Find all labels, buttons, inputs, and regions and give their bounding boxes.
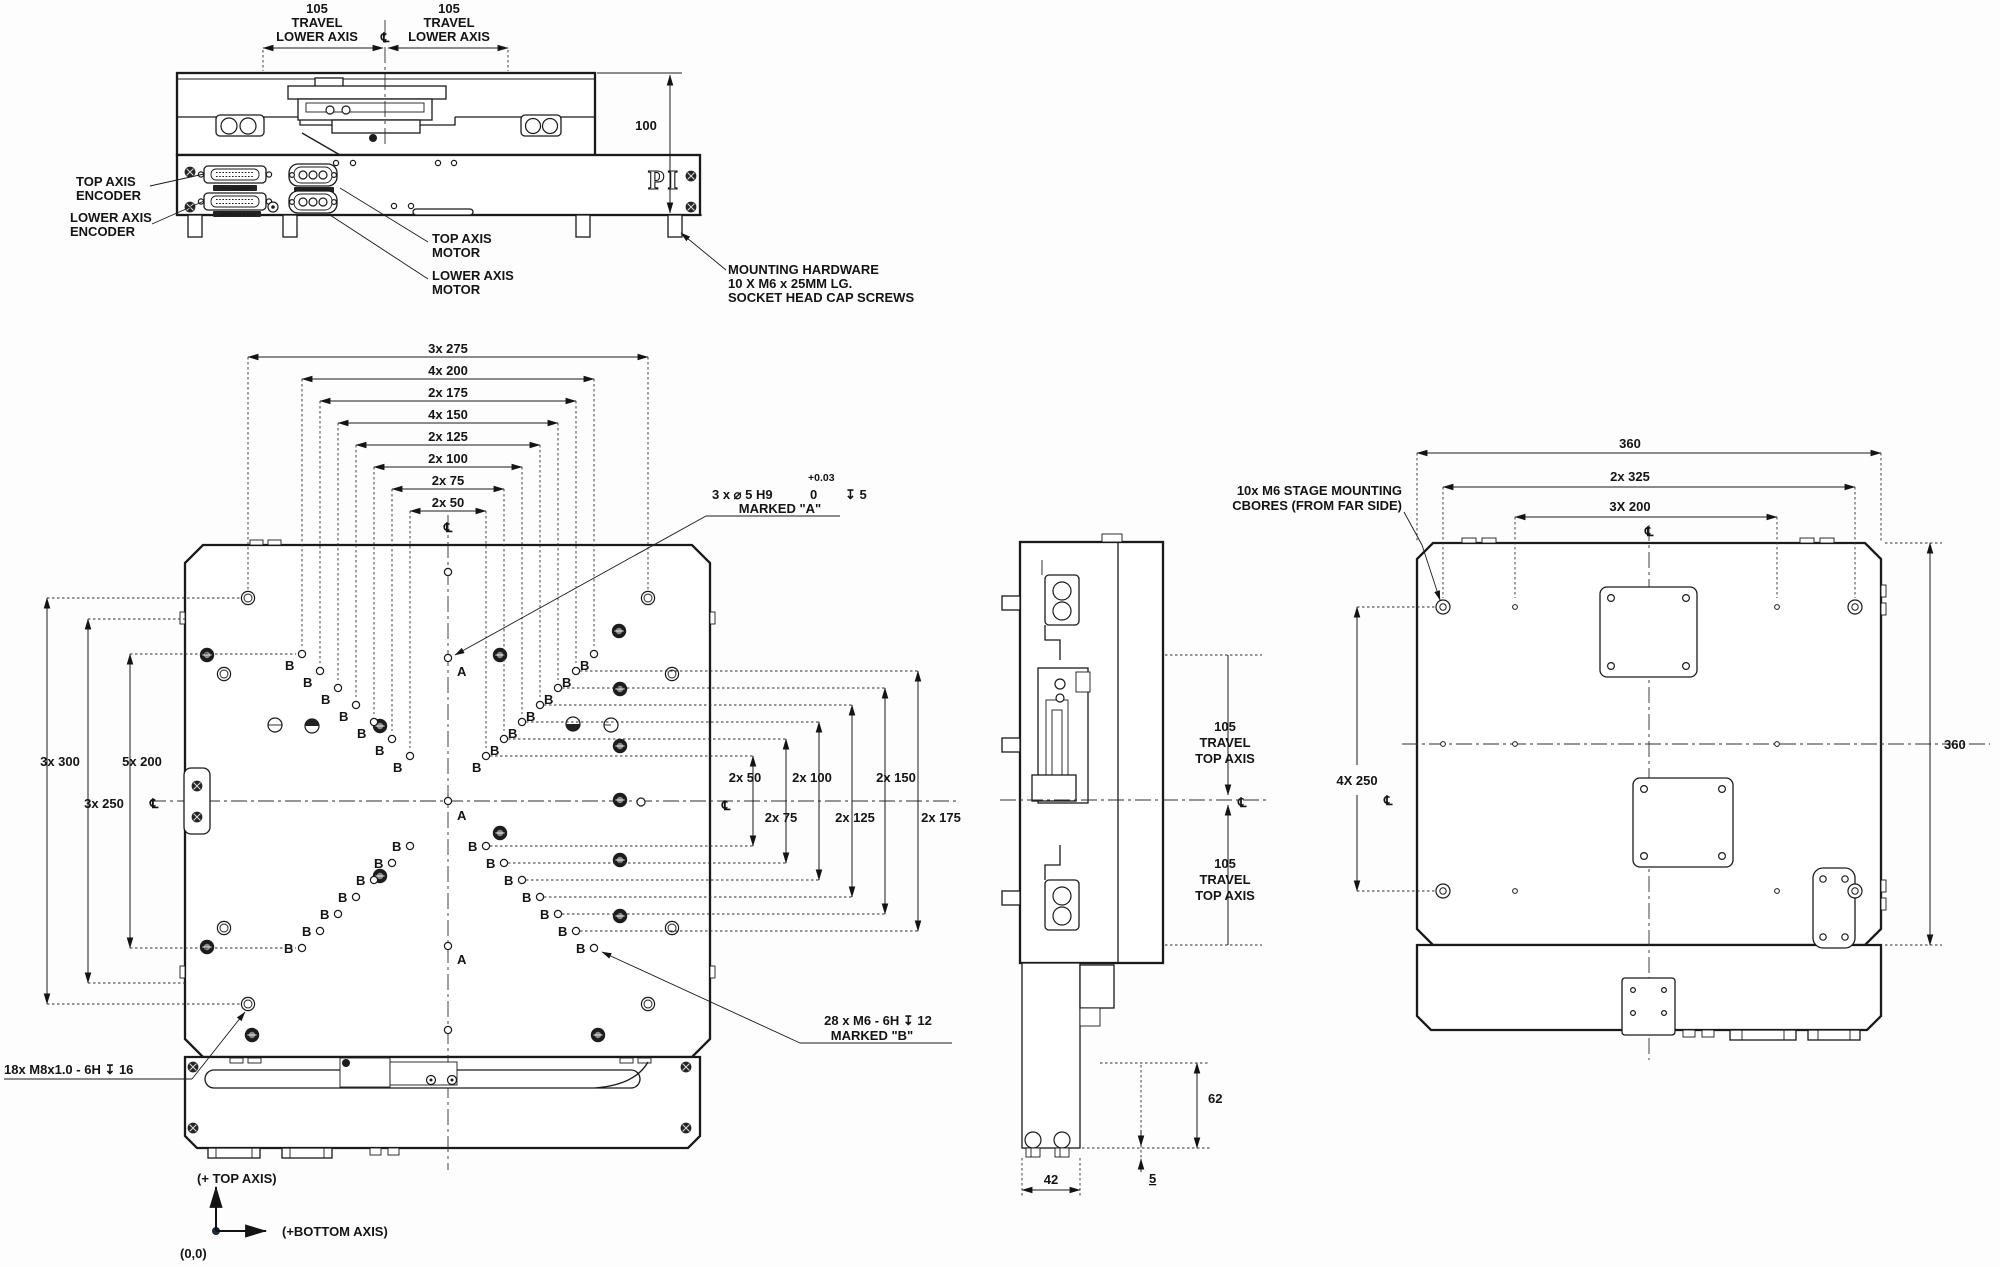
centerline-symbol: ℄: [380, 30, 390, 45]
conn-label-top-enc: TOP AXIS ENC: [219, 186, 251, 191]
label-lower-axis-motor-1: LOWER AXIS: [432, 268, 514, 283]
hole-marker-b: B: [320, 907, 329, 922]
axis-label-bottom: (+BOTTOM AXIS): [282, 1224, 388, 1239]
label-lower-axis-encoder-1: LOWER AXIS: [70, 210, 152, 225]
dim-42: 42: [1044, 1172, 1058, 1187]
callout-a-tol-lo: 0: [810, 487, 817, 502]
foot: [576, 215, 590, 237]
foot: [283, 215, 297, 237]
hole-marker-b: B: [522, 890, 531, 905]
dim-4x200: 4x 200: [428, 363, 468, 378]
dim-travel-top-upper-value: 105: [1214, 719, 1236, 734]
centerline-symbol: ℄: [1383, 793, 1393, 808]
dim-travel-lower-right-label1: TRAVEL: [423, 15, 474, 30]
motor-connector-top: TOP AXIS MTR: [289, 164, 337, 193]
limit-plate: [184, 768, 210, 834]
dim-2x325: 2x 325: [1610, 469, 1650, 484]
dim-height-100: 100: [635, 118, 657, 133]
dim-62: 62: [1208, 1091, 1222, 1106]
dim-2x100-right: 2x 100: [792, 770, 832, 785]
technical-drawing: TOP AXIS ENC LOWER AXIS ENC TOP AXIS MTR…: [0, 0, 2000, 1267]
dim-2x50: 2x 50: [432, 495, 465, 510]
dim-3x250: 3x 250: [84, 796, 124, 811]
hole-marker-b: B: [284, 941, 293, 956]
dim-travel-top-lower-label1: TRAVEL: [1199, 872, 1250, 887]
bottom-view: 360 2x 325 3X 200 ℄ 4X 250 ℄ 360 10x M6 …: [1232, 436, 1990, 1060]
dim-2x125: 2x 125: [428, 429, 468, 444]
dim-travel-lower-right-value: 105: [438, 1, 460, 16]
hole-marker-b: B: [339, 709, 348, 724]
hole-marker-b: B: [356, 873, 365, 888]
hole-marker-b: B: [285, 658, 294, 673]
dim-2x125-right: 2x 125: [835, 810, 875, 825]
hole-marker-a: A: [457, 952, 467, 967]
label-top-axis-encoder-1: TOP AXIS: [76, 174, 136, 189]
centerline-symbol: ℄: [443, 520, 453, 535]
hole-marker-a: A: [457, 808, 467, 823]
side-motor-housing: [1022, 963, 1080, 1148]
hole-marker-b: B: [558, 924, 567, 939]
dim-3x300: 3x 300: [40, 754, 80, 769]
dim-travel-top-upper-label1: TRAVEL: [1199, 735, 1250, 750]
dim-2x175-right: 2x 175: [921, 810, 961, 825]
dim-travel-top-lower-value: 105: [1214, 856, 1236, 871]
cover-plate-lower: [1633, 778, 1733, 867]
dim-3x275: 3x 275: [428, 341, 468, 356]
centerline-symbol: ℄: [1237, 795, 1247, 810]
hole-marker-b: B: [374, 856, 383, 871]
hole-marker-b: B: [357, 726, 366, 741]
foot: [188, 215, 202, 237]
cover-plate-upper: [1600, 587, 1697, 677]
engineering-drawing-page: TOP AXIS ENC LOWER AXIS ENC TOP AXIS MTR…: [0, 0, 2000, 1267]
label-mounting-hardware-3: SOCKET HEAD CAP SCREWS: [728, 290, 914, 305]
label-lower-axis-motor-2: MOTOR: [432, 282, 481, 297]
conn-label-lower-enc: LOWER AXIS ENC: [218, 212, 257, 217]
hole-marker-b: B: [504, 873, 513, 888]
hole-marker-b: B: [486, 856, 495, 871]
dim-4x250: 4X 250: [1336, 773, 1377, 788]
callout-b-line1: 28 x M6 - 6H ↧ 12: [824, 1013, 932, 1028]
hole-marker-b: B: [302, 924, 311, 939]
hole-marker-b: B: [375, 743, 384, 758]
side-view: 105 TRAVEL TOP AXIS 105 TRAVEL TOP AXIS …: [1000, 534, 1270, 1196]
centerline-symbol: ℄: [721, 798, 731, 813]
hole-marker-b: B: [392, 839, 401, 854]
foot: [668, 215, 682, 237]
dim-2x150-right: 2x 150: [876, 770, 916, 785]
hole-marker-b: B: [576, 941, 585, 956]
dim-travel-top-upper-label2: TOP AXIS: [1195, 751, 1255, 766]
callout-cbores-2: CBORES (FROM FAR SIDE): [1232, 498, 1402, 513]
hole-marker-b: B: [472, 760, 481, 775]
hole-marker-b: B: [321, 692, 330, 707]
axis-origin: (0,0): [180, 1246, 207, 1261]
dim-3x200: 3X 200: [1609, 499, 1650, 514]
centerline-symbol: ℄: [1644, 524, 1654, 539]
dim-2x50-right: 2x 50: [729, 770, 762, 785]
centerline-symbol: ℄: [149, 796, 159, 811]
label-top-axis-encoder-2: ENCODER: [76, 188, 142, 203]
callout-a-marked: MARKED "A": [739, 501, 821, 516]
dim-360-right: 360: [1944, 737, 1966, 752]
dim-2x75: 2x 75: [432, 473, 465, 488]
axis-indicator: (+ TOP AXIS) (+BOTTOM AXIS) (0,0): [180, 1171, 388, 1261]
callout-b-line2: MARKED "B": [831, 1028, 913, 1043]
hole-marker-b: B: [540, 907, 549, 922]
hole-marker-b: B: [303, 675, 312, 690]
label-mounting-hardware-2: 10 X M6 x 25MM LG.: [728, 276, 852, 291]
dim-360-top: 360: [1619, 436, 1641, 451]
bottom-bracket: [1622, 978, 1675, 1035]
callout-cbores-1: 10x M6 STAGE MOUNTING: [1237, 483, 1402, 498]
hole-marker-b: B: [393, 760, 402, 775]
dim-travel-lower-right-label2: LOWER AXIS: [408, 29, 490, 44]
motor-connector-lower: [289, 191, 337, 213]
label-lower-axis-encoder-2: ENCODER: [70, 224, 136, 239]
cover-plate-corner: [1813, 868, 1855, 948]
callout-a-depth: ↧ 5: [845, 487, 867, 502]
pi-logo: PI: [648, 165, 681, 195]
hole-marker-b: B: [468, 839, 477, 854]
dim-travel-top-lower-label2: TOP AXIS: [1195, 888, 1255, 903]
dim-5x200: 5x 200: [122, 754, 162, 769]
callout-a-tol-hi: +0.03: [808, 472, 835, 484]
dim-travel-lower-left-label2: LOWER AXIS: [276, 29, 358, 44]
dim-2x175: 2x 175: [428, 385, 468, 400]
plan-view: A A A B B B B B B B B B B B B B B B B B …: [4, 341, 961, 1261]
label-top-axis-motor-2: MOTOR: [432, 245, 481, 260]
bottom-connector-stub: [1730, 1030, 1796, 1040]
callout-m8: 18x M8x1.0 - 6H ↧ 16: [4, 1062, 133, 1077]
dim-travel-lower-left-value: 105: [306, 1, 328, 16]
callout-a-main: 3 x ⌀ 5 H9: [712, 487, 773, 502]
dim-2x75-right: 2x 75: [765, 810, 798, 825]
dim-2x100: 2x 100: [428, 451, 468, 466]
hole-marker-a: A: [457, 664, 467, 679]
front-view: TOP AXIS ENC LOWER AXIS ENC TOP AXIS MTR…: [70, 1, 914, 305]
bottom-connector-stub: [282, 1148, 332, 1158]
dim-4x150: 4x 150: [428, 407, 468, 422]
dim-travel-lower-left-label1: TRAVEL: [291, 15, 342, 30]
dim-5: 5: [1149, 1171, 1156, 1186]
axis-label-top: (+ TOP AXIS): [197, 1171, 277, 1186]
label-top-axis-motor-1: TOP AXIS: [432, 231, 492, 246]
hole-marker-b: B: [338, 890, 347, 905]
bottom-connector-stub: [1808, 1030, 1860, 1040]
label-mounting-hardware-1: MOUNTING HARDWARE: [728, 262, 879, 277]
